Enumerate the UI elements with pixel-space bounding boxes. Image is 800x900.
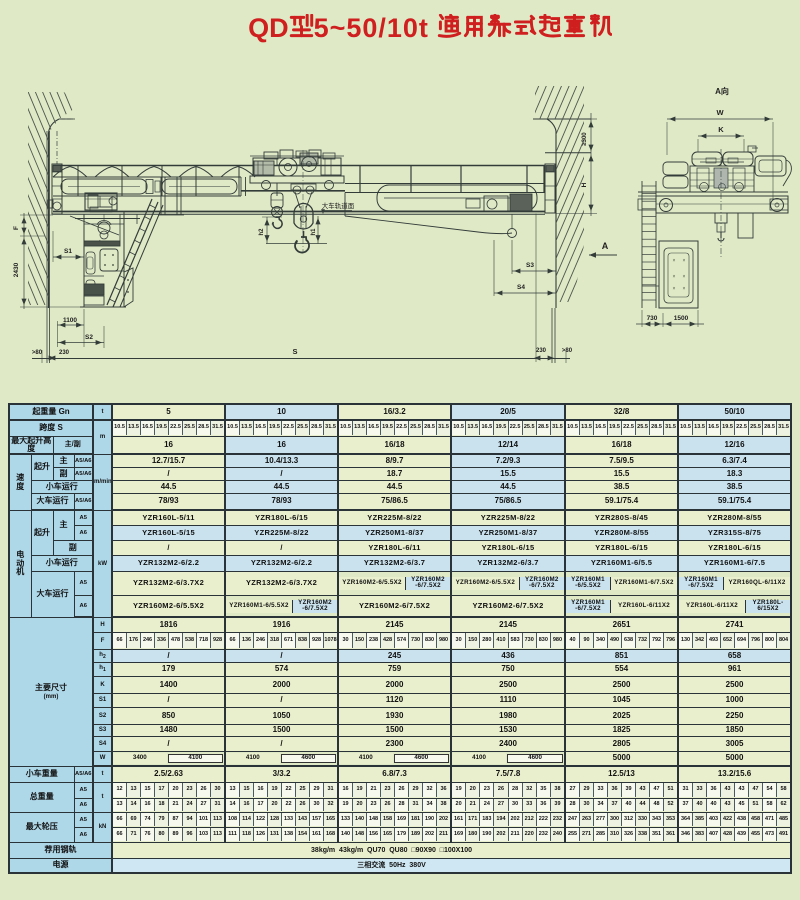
svg-text:×: × (683, 274, 686, 280)
svg-text:S2: S2 (85, 334, 93, 341)
svg-text:730: 730 (647, 315, 658, 322)
svg-text:F: F (13, 226, 20, 230)
svg-text:230: 230 (59, 350, 70, 356)
svg-text:230: 230 (536, 348, 547, 354)
svg-text:大车轨道面: 大车轨道面 (322, 201, 355, 210)
svg-text:>80: >80 (32, 350, 43, 356)
svg-text:h2: h2 (259, 228, 265, 236)
svg-text:×: × (673, 274, 676, 280)
svg-text:S3: S3 (526, 262, 534, 269)
svg-text:A向: A向 (715, 86, 729, 96)
svg-text:×: × (683, 286, 686, 292)
svg-text:h1: h1 (311, 228, 317, 236)
svg-text:2430: 2430 (13, 262, 20, 277)
svg-text:W: W (716, 108, 724, 117)
svg-text:S: S (292, 347, 297, 356)
svg-text:×: × (673, 286, 676, 292)
svg-text:≥300: ≥300 (582, 132, 588, 146)
svg-text:1500: 1500 (674, 315, 689, 322)
svg-text:>80: >80 (562, 348, 573, 354)
svg-text:K: K (718, 125, 724, 134)
svg-text:A: A (602, 241, 609, 251)
svg-text:H: H (581, 182, 588, 187)
svg-text:1100: 1100 (63, 317, 77, 324)
svg-text:×: × (673, 258, 676, 264)
svg-text:S4: S4 (517, 284, 525, 291)
svg-text:S1: S1 (64, 248, 72, 255)
svg-text:×: × (683, 258, 686, 264)
